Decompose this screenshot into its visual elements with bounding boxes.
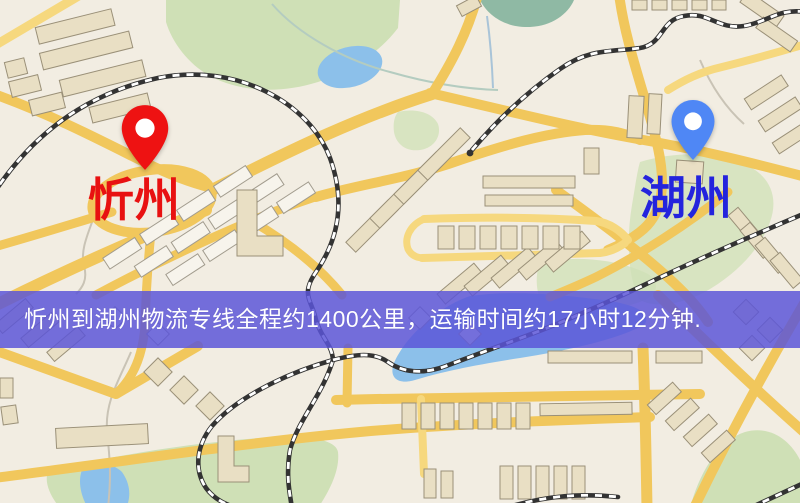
origin-label: 忻州	[88, 178, 180, 224]
route-info-banner: 忻州到湖州物流专线全程约1400公里，运输时间约17小时12分钟.	[0, 291, 800, 348]
route-info-text: 忻州到湖州物流专线全程约1400公里，运输时间约17小时12分钟.	[24, 291, 701, 348]
destination-label: 湖州	[640, 176, 732, 222]
map-canvas	[0, 0, 800, 503]
origin-pin-icon	[117, 104, 173, 171]
destination-pin-icon	[667, 99, 719, 161]
map-screenshot: 忻州到湖州物流专线全程约1400公里，运输时间约17小时12分钟. 忻州 湖州	[0, 0, 800, 503]
